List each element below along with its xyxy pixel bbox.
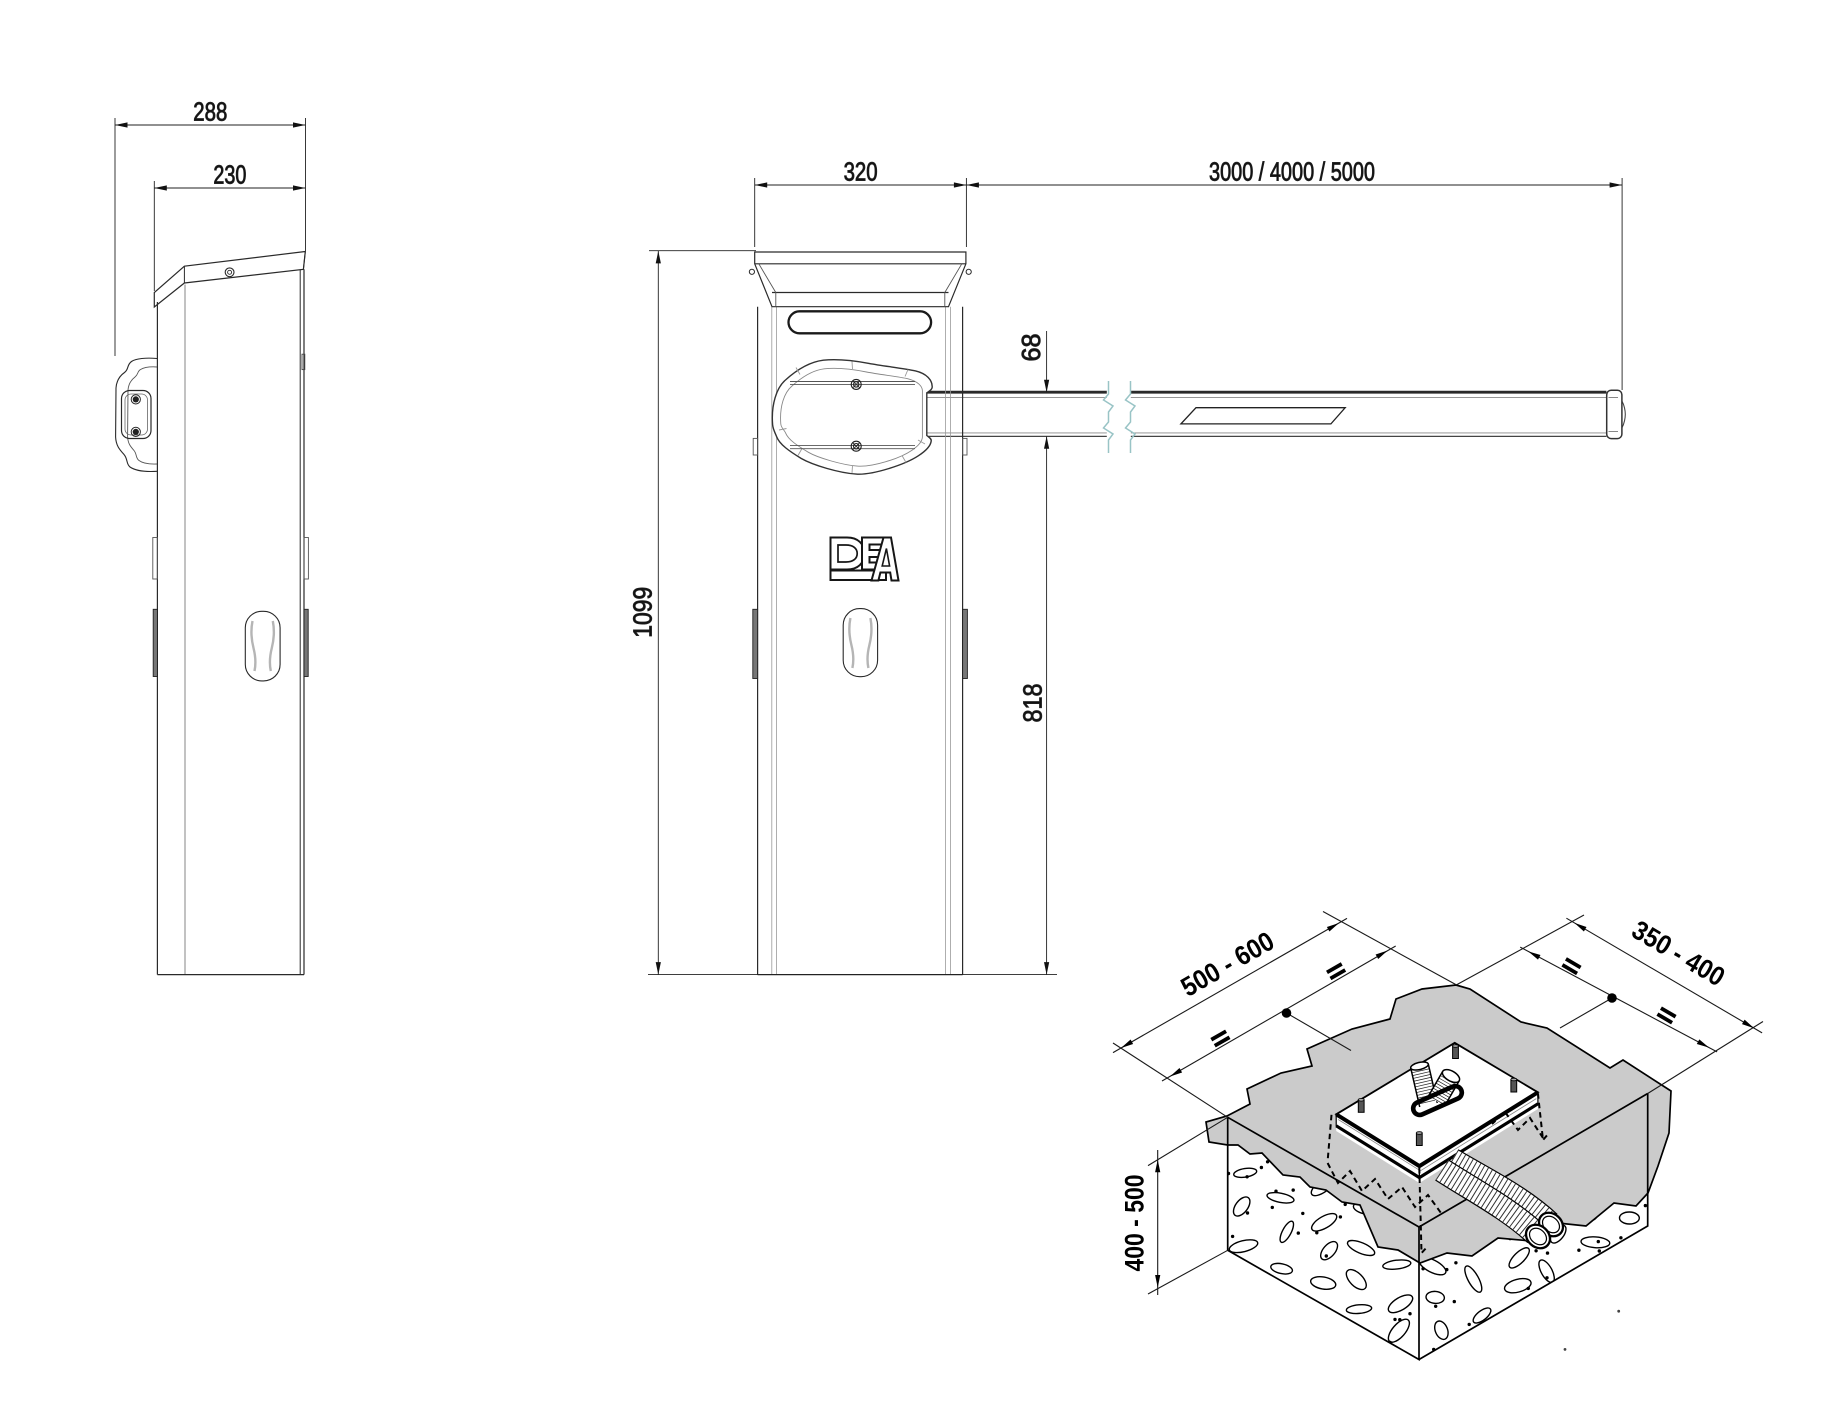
svg-text:400 - 500: 400 - 500 <box>1120 1175 1150 1272</box>
svg-text:818: 818 <box>1018 684 1048 723</box>
svg-text:320: 320 <box>844 157 878 187</box>
svg-text:3000 / 4000 / 5000: 3000 / 4000 / 5000 <box>1209 157 1375 187</box>
svg-text:1099: 1099 <box>628 587 658 638</box>
svg-text:68: 68 <box>1016 334 1046 362</box>
svg-text:288: 288 <box>193 97 227 127</box>
svg-text:230: 230 <box>213 160 246 190</box>
